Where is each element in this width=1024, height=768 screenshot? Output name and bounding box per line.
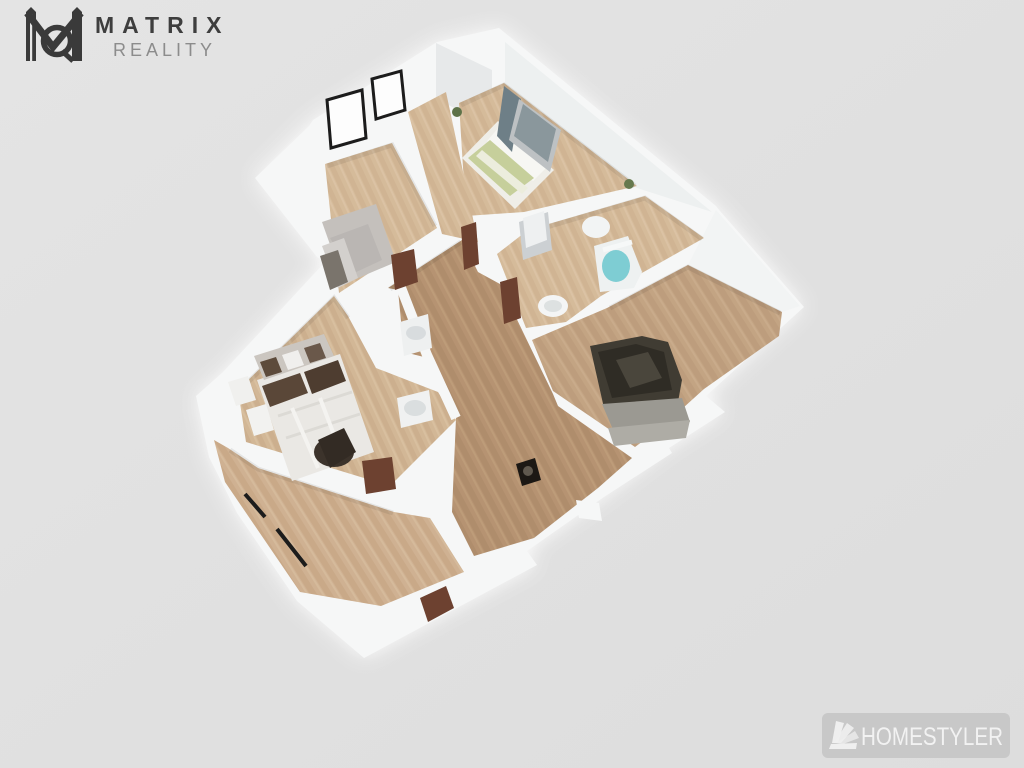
svg-text:MATRIX: MATRIX	[95, 12, 229, 38]
svg-text:REALITY: REALITY	[113, 40, 216, 60]
svg-text:HOMESTYLER: HOMESTYLER	[861, 723, 1003, 751]
